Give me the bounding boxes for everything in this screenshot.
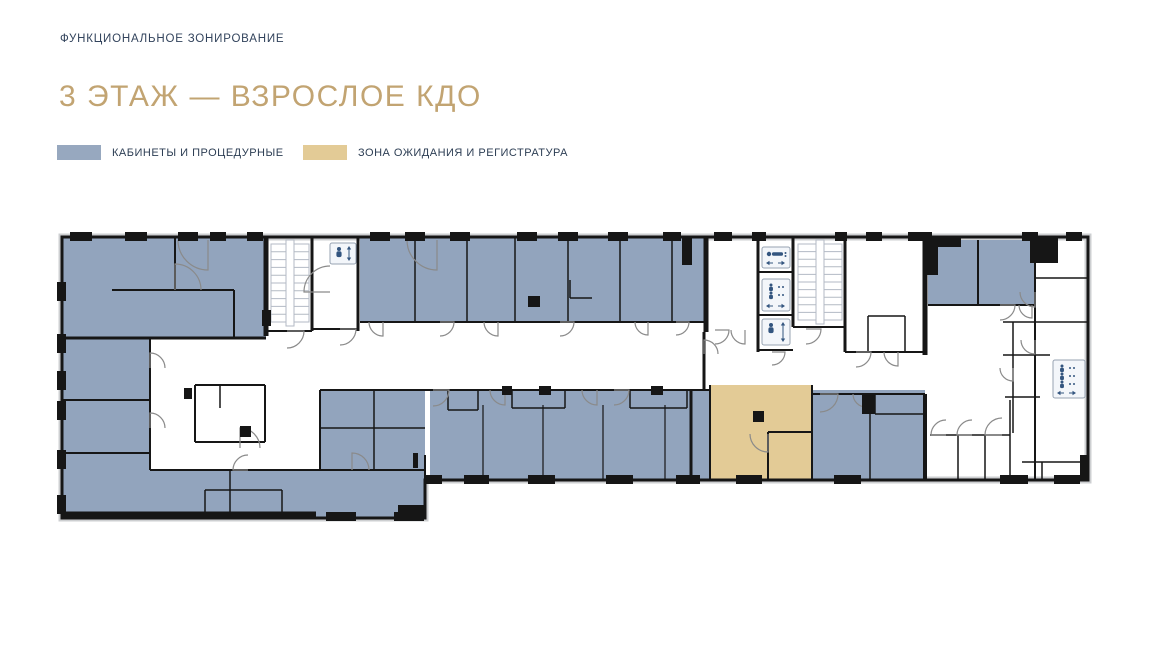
wall-nub	[608, 232, 628, 241]
wall-nub	[57, 282, 66, 301]
wall-nub	[925, 237, 938, 275]
person-glyph	[1061, 381, 1064, 384]
person-glyph	[770, 292, 773, 295]
stair-stringer	[286, 240, 294, 326]
wall-nub	[326, 512, 356, 521]
person-glyph	[768, 327, 773, 333]
person-glyph	[1060, 384, 1064, 388]
wall-nub	[866, 232, 882, 241]
wall-nub	[539, 386, 551, 395]
rooms-bottom-mid-band	[430, 390, 710, 480]
wall-nub	[682, 237, 692, 265]
rooms-bottom-left-band	[150, 470, 425, 518]
wall-nub	[1080, 455, 1089, 480]
person-glyph	[337, 247, 341, 251]
dot	[1073, 383, 1075, 385]
person-glyph	[769, 287, 773, 291]
wall-nub	[517, 232, 537, 241]
elevator-icon-box	[762, 319, 790, 345]
rooms-left-mid-block	[320, 390, 425, 470]
wall-nub	[651, 386, 663, 395]
wall-nub	[247, 232, 263, 241]
wall-nub	[753, 411, 764, 422]
wall-nub	[663, 232, 681, 241]
elevator-icon-box	[330, 243, 356, 264]
dot	[785, 255, 787, 257]
dot	[782, 286, 784, 288]
dot	[1069, 383, 1071, 385]
wall-nub	[262, 310, 271, 326]
floor-plan	[0, 0, 1149, 645]
dot	[778, 294, 780, 296]
elevator-people-lr-icon	[762, 279, 790, 311]
wall-nub	[1066, 232, 1082, 241]
wall-nub	[240, 426, 251, 437]
person-glyph	[769, 295, 773, 299]
person-glyph	[336, 251, 341, 257]
rooms-top-left-block	[62, 237, 266, 338]
wall-nub	[862, 394, 875, 414]
wall-nub	[736, 475, 762, 484]
wall-nub	[70, 232, 92, 241]
dot	[1073, 367, 1075, 369]
wall-nub	[57, 495, 66, 514]
person-glyph	[770, 284, 773, 287]
wall-nub	[835, 232, 847, 241]
wall-nub	[1000, 475, 1028, 484]
wall-nub	[752, 232, 766, 241]
wall-nub	[528, 296, 540, 307]
wall-nub	[405, 232, 425, 241]
wall-nub	[125, 232, 147, 241]
wall-nub	[178, 232, 198, 241]
wall-nub	[464, 475, 489, 484]
dot	[1073, 375, 1075, 377]
dot	[782, 294, 784, 296]
person-glyph	[1060, 368, 1064, 372]
stair-stringer	[816, 240, 824, 324]
wall-nub	[450, 232, 470, 241]
wall-nub	[370, 232, 390, 241]
wall-nub	[57, 371, 66, 390]
dot	[1069, 367, 1071, 369]
bed-glyph	[767, 252, 771, 256]
rooms-top-band	[360, 237, 706, 322]
elevator-bed-lr-icon	[762, 247, 790, 268]
person-glyph	[769, 323, 773, 327]
rooms-left-column	[62, 338, 150, 518]
wall-nub	[398, 505, 424, 515]
wall-nub	[1030, 237, 1058, 263]
wall-nub	[57, 334, 66, 353]
elevator-icon-box	[762, 247, 790, 268]
dot	[785, 252, 787, 254]
elevator-person-updown-icon	[330, 243, 356, 264]
wall-nub	[502, 386, 512, 395]
person-glyph	[1060, 376, 1064, 380]
wall-nub	[834, 475, 861, 484]
wall-nub	[606, 475, 633, 484]
elevator-icon-box	[1053, 360, 1085, 398]
rooms-top-right-b	[978, 240, 1035, 305]
bed-glyph	[772, 252, 783, 256]
elevator-people-lr-icon	[1053, 360, 1085, 398]
wall-nub	[425, 475, 442, 484]
wall-nub	[528, 475, 555, 484]
wall-nub	[714, 232, 732, 241]
wall-nub	[57, 401, 66, 420]
dot	[778, 286, 780, 288]
elevator-icon-box	[762, 279, 790, 311]
wall-nub	[558, 232, 578, 241]
person-glyph	[1061, 373, 1064, 376]
elevator-person-updown-icon	[762, 319, 790, 345]
wall-nub	[184, 388, 192, 399]
wall-nub	[1054, 475, 1080, 484]
person-glyph	[1061, 365, 1064, 368]
dot	[1069, 375, 1071, 377]
wall-nub	[57, 450, 66, 469]
wall-nub	[413, 453, 418, 468]
wall-nub	[676, 475, 700, 484]
wall-nub	[210, 232, 226, 241]
